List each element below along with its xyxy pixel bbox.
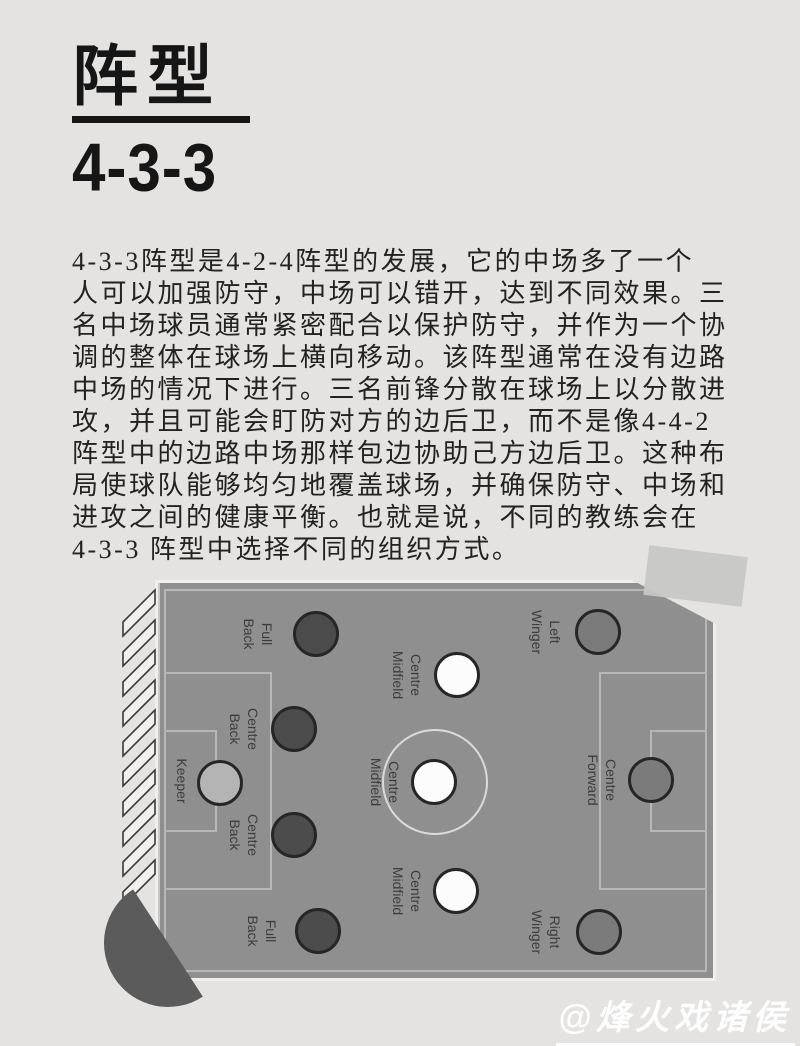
centre-forward-label: CentreForward: [584, 734, 620, 826]
player-label-line: Right: [546, 886, 564, 978]
player-label-line: Midfield: [367, 736, 385, 828]
centre-back-bottom-label: CentreBack: [226, 789, 262, 881]
paragraph-line: 调的整体在球场上横向移动。该阵型通常在没有边路: [72, 342, 752, 374]
description-paragraph: 4-3-3阵型是4-2-4阵型的发展，它的中场多了一个人可以加强防守，中场可以错…: [72, 246, 752, 566]
player-label-line: Full: [258, 588, 276, 680]
paragraph-line: 进攻之间的健康平衡。也就是说，不同的教练会在: [72, 502, 752, 534]
centre-midfield-top-label: CentreMidfield: [389, 629, 425, 721]
keeper-label: Keeper: [173, 735, 191, 827]
player-label-line: Full: [262, 885, 280, 977]
pitch-field: Keeper FullBack CentreBack CentreBack Fu…: [158, 583, 713, 978]
player-label-line: Midfield: [389, 845, 407, 937]
page-title: 阵型: [72, 40, 250, 123]
left-winger-marker: [575, 609, 621, 655]
centre-midfield-top-marker: [434, 652, 480, 698]
left-winger-label: LeftWinger: [528, 586, 564, 678]
paragraph-line: 阵型中的边路中场那样包边协助己方边后卫。这种布: [72, 438, 752, 470]
player-label-line: Keeper: [173, 735, 191, 827]
paragraph-line: 攻，并且可能会盯防对方的边后卫，而不是像4-4-2: [72, 406, 752, 438]
player-label-line: Centre: [244, 683, 262, 775]
full-back-top-label: FullBack: [240, 588, 276, 680]
player-label-line: Back: [226, 789, 244, 881]
full-back-top-marker: [293, 611, 339, 657]
centre-midfield-bottom-label: CentreMidfield: [389, 845, 425, 937]
player-label-line: Centre: [407, 845, 425, 937]
hatch-decoration: [119, 584, 159, 915]
player-label-line: Left: [546, 586, 564, 678]
centre-midfield-mid-label: CentreMidfield: [367, 736, 403, 828]
watermark: @烽火戏诸侯: [556, 990, 795, 1046]
right-winger-marker: [576, 909, 622, 955]
centre-back-top-marker: [271, 706, 317, 752]
player-label-line: Winger: [528, 586, 546, 678]
hatch-pattern: [119, 584, 159, 910]
player-label-line: Forward: [584, 734, 602, 826]
full-back-bottom-marker: [295, 908, 341, 954]
paragraph-line: 名中场球员通常紧密配合以保护防守，并作为一个协: [72, 310, 752, 342]
player-label-line: Back: [244, 885, 262, 977]
player-label-line: Centre: [244, 789, 262, 881]
paragraph-line: 中场的情况下进行。三名前锋分散在球场上以分散进: [72, 374, 752, 406]
player-label-line: Midfield: [389, 629, 407, 721]
player-label-line: Centre: [602, 734, 620, 826]
paragraph-line: 局使球队能够均匀地覆盖球场，并确保防守、中场和: [72, 470, 752, 502]
football-pitch-diagram: Keeper FullBack CentreBack CentreBack Fu…: [155, 580, 716, 981]
full-back-bottom-label: FullBack: [244, 885, 280, 977]
paragraph-line: 4-3-3阵型是4-2-4阵型的发展，它的中场多了一个: [72, 246, 752, 278]
player-label-line: Back: [240, 588, 258, 680]
player-label-line: Back: [226, 683, 244, 775]
player-label-line: Winger: [528, 886, 546, 978]
player-label-line: Centre: [385, 736, 403, 828]
centre-midfield-mid-marker: [411, 759, 457, 805]
centre-forward-marker: [628, 757, 674, 803]
formation-name: 4-3-3: [72, 128, 217, 206]
centre-back-top-label: CentreBack: [226, 683, 262, 775]
right-winger-label: RightWinger: [528, 886, 564, 978]
centre-back-bottom-marker: [271, 812, 317, 858]
paragraph-line: 人可以加强防守，中场可以错开，达到不同效果。三: [72, 278, 752, 310]
player-label-line: Centre: [407, 629, 425, 721]
centre-midfield-bottom-marker: [433, 868, 479, 914]
